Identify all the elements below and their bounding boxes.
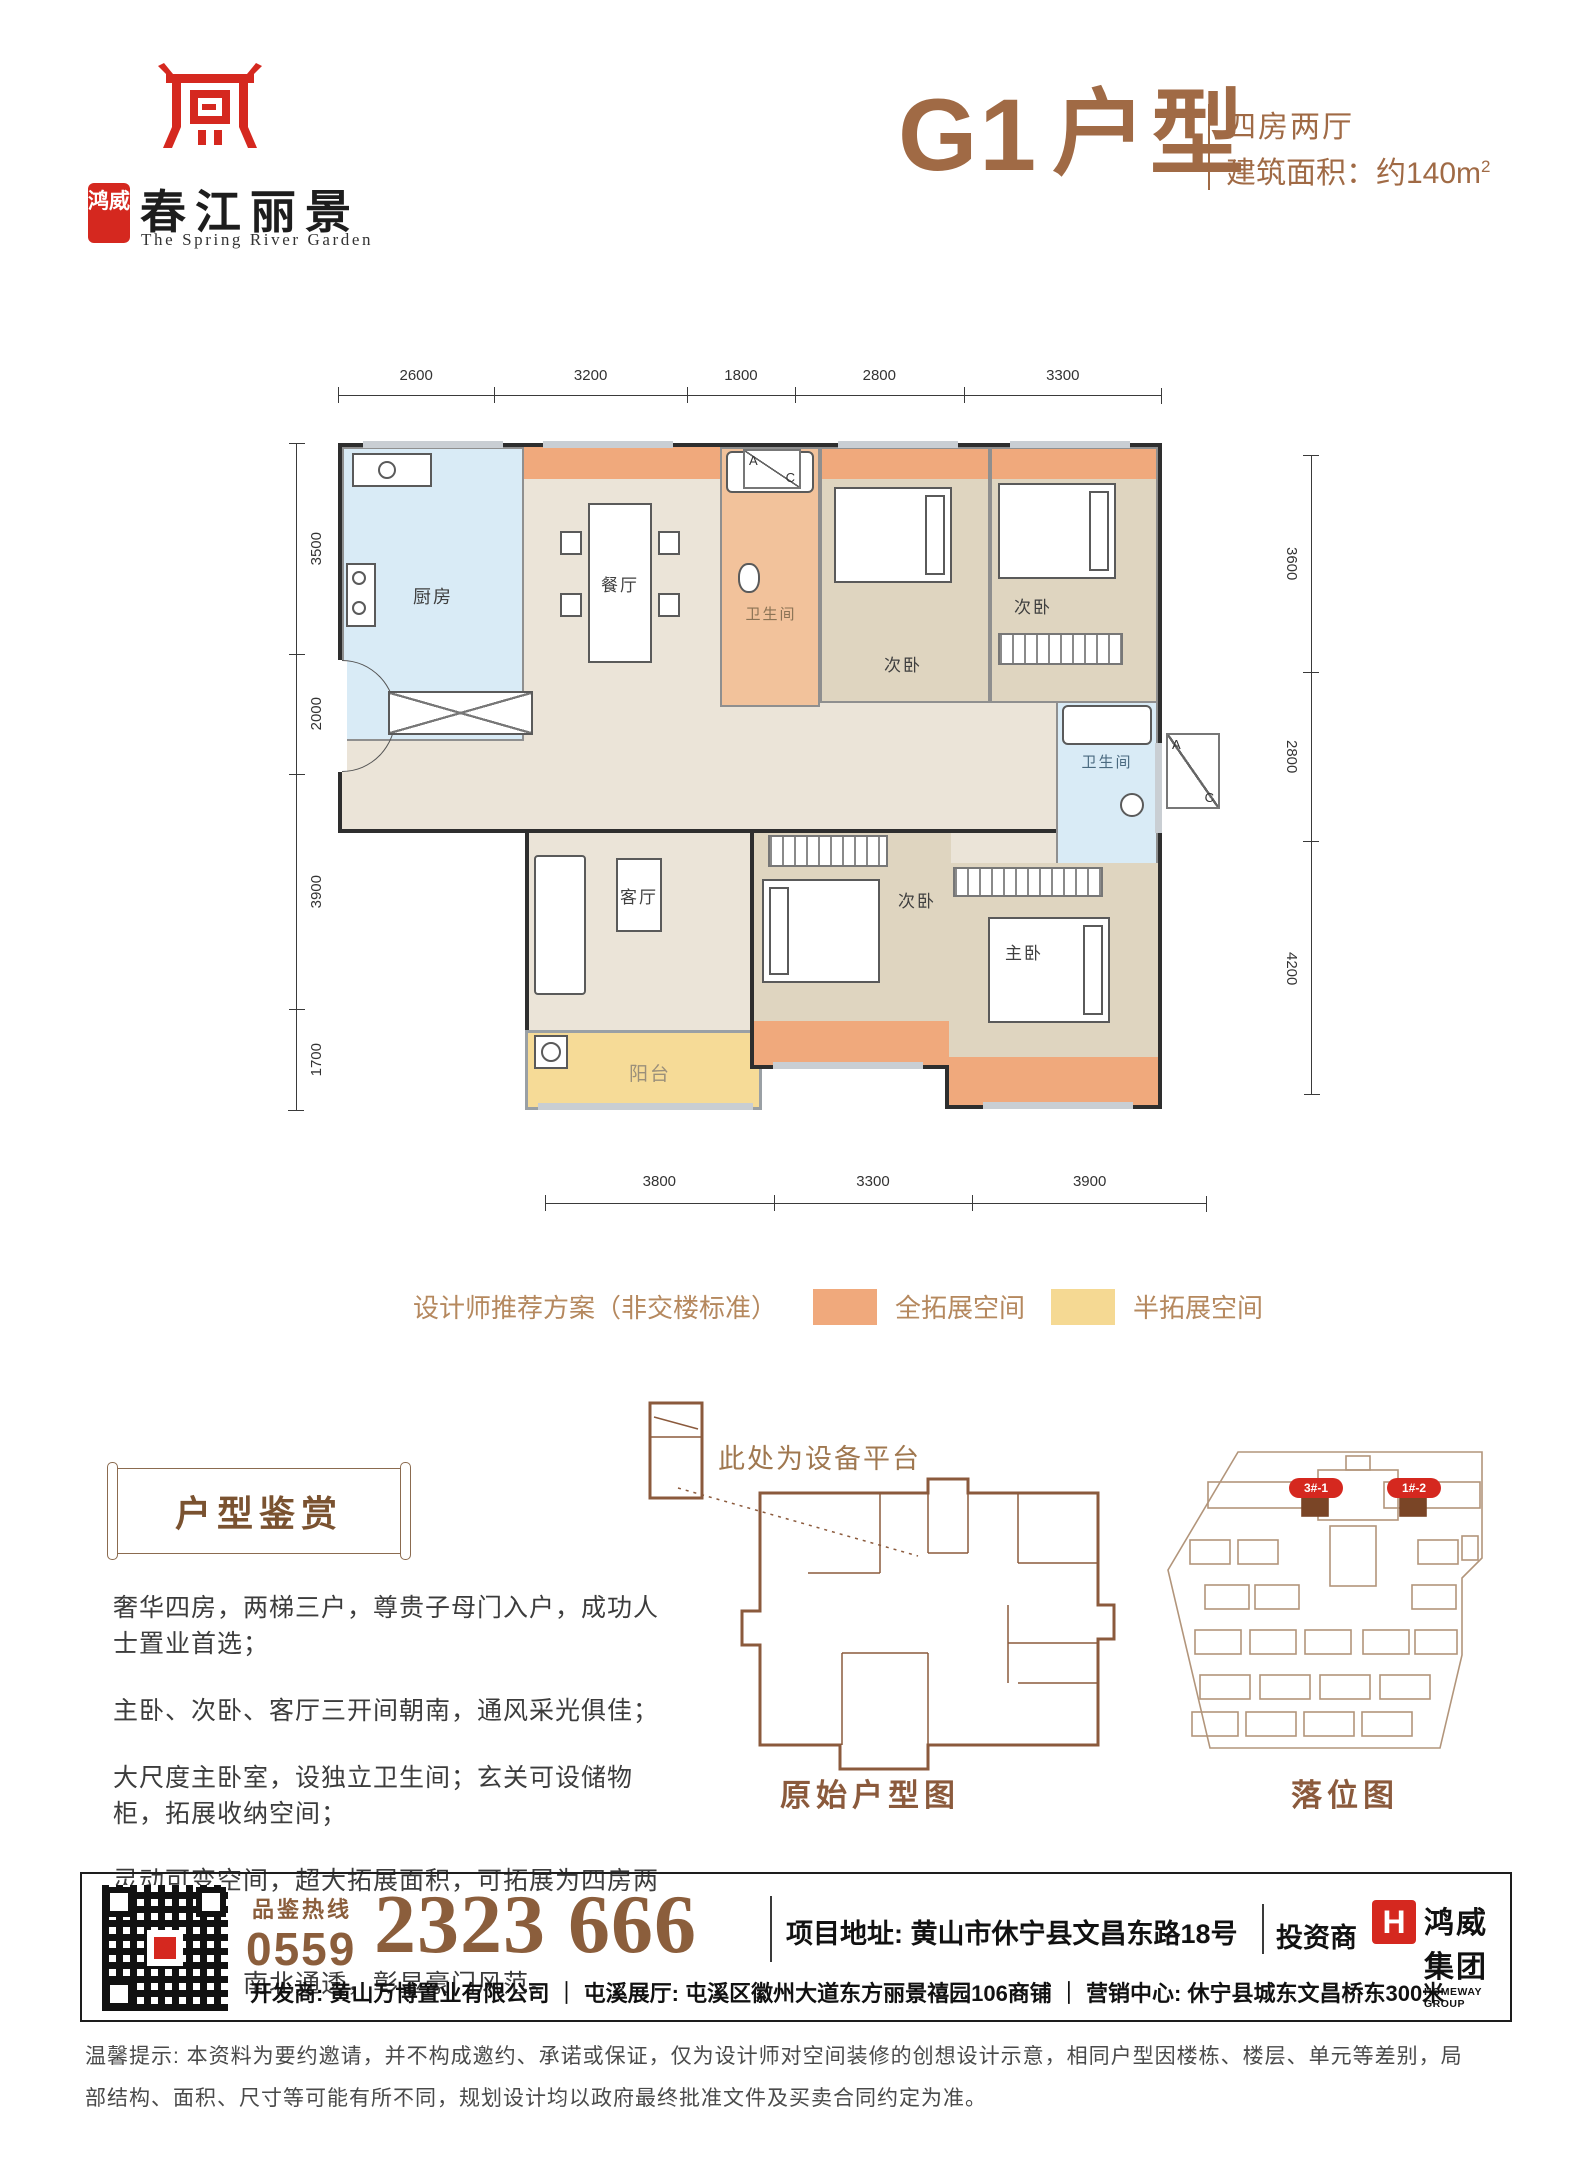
room-label-kitchen: 厨房: [393, 583, 473, 609]
legend-note: 设计师推荐方案（非交楼标准）: [413, 1288, 777, 1325]
dim-bottom: 3800 3300 3900: [545, 1164, 1207, 1204]
dim-segment: 1700: [296, 1009, 336, 1111]
dim-segment: 3300: [774, 1164, 973, 1204]
site-marker: 1#-2: [1387, 1478, 1441, 1498]
dim-segment: 2600: [338, 358, 494, 396]
window: [773, 1062, 923, 1069]
legend: 设计师推荐方案（非交楼标准） 全拓展空间 半拓展空间: [413, 1288, 1263, 1325]
ac-letter: A: [1172, 737, 1181, 752]
window: [838, 441, 958, 448]
wardrobe: [953, 867, 1103, 897]
brand-emblem-icon: [158, 60, 262, 160]
investor-label: 投资商: [1276, 1916, 1357, 1955]
toilet: [738, 563, 760, 593]
bed: [834, 487, 952, 583]
legend-swatch-full-expand: [813, 1289, 877, 1325]
appreciation-line: 主卧、次卧、客厅三开间朝南，通风采光俱佳；: [113, 1691, 673, 1727]
qr-finder: [104, 1887, 134, 1917]
dim-left: 3500 2000 3900 1700: [296, 443, 336, 1111]
sofa: [534, 855, 586, 995]
dim-segment: 3900: [296, 774, 336, 1009]
unit-word: 户型: [1052, 84, 1248, 184]
original-plan-caption: 原始户型图: [770, 1770, 970, 1815]
burner: [352, 601, 366, 615]
room-label-living: 客厅: [620, 883, 658, 908]
hotline-number: 2323 666: [374, 1876, 697, 1973]
unit-type: 四房两厅: [1226, 102, 1354, 146]
room-label-balcony: 阳台: [618, 1059, 682, 1086]
title-divider: [1208, 104, 1210, 190]
qr-finder: [196, 1887, 226, 1917]
dim-segment: 3900: [972, 1164, 1207, 1204]
dim-segment: 2000: [296, 654, 336, 774]
tea-table: 客厅: [616, 858, 662, 932]
room-label-dining: 餐厅: [601, 571, 639, 596]
brand-seal: 鸿威: [88, 183, 130, 243]
contact-bar: 品鉴热线 0559 2323 666 项目地址: 黄山市休宁县文昌东路18号 投…: [80, 1872, 1512, 2022]
site-plan-caption: 落位图: [1265, 1770, 1425, 1815]
appreciation-title-box: 户型鉴赏: [113, 1468, 405, 1554]
dining-chair: [658, 593, 680, 617]
dining-chair: [560, 593, 582, 617]
disclaimer-line: 温馨提示: 本资料为要约邀请，并不构成邀约、承诺或保证，仅为设计师对空间装修的创…: [85, 2040, 1525, 2070]
ac-letter: C: [1205, 790, 1214, 805]
developer-line: 开发商: 黄山万博置业有限公司 ｜ 屯溪展厅: 屯溪区徽州大道东方丽景禧园106…: [250, 1976, 1444, 2008]
bed: [762, 879, 880, 983]
room-label-bath-master: 卫生间: [1064, 751, 1150, 772]
appreciation-line: 大尺度主卧室，设独立卫生间；玄关可设储物柜，拓展收纳空间；: [113, 1758, 673, 1830]
sink-basin: [378, 461, 396, 479]
unit-code: G1: [898, 84, 1038, 186]
investor-name: 鸿威集团: [1424, 1898, 1510, 1986]
bed: [998, 483, 1116, 579]
ac-platform: A C: [1166, 733, 1220, 809]
expand-band-dining: [524, 447, 722, 479]
project-address: 项目地址: 黄山市休宁县文昌东路18号: [786, 1912, 1238, 1951]
unit-area: 建筑面积：约140m2: [1226, 148, 1491, 192]
qr-finder: [104, 1979, 134, 2009]
area-prefix: 建筑面积：: [1226, 157, 1376, 190]
shoe-cabinet: [388, 691, 533, 735]
floorplan: 餐厅 客厅 A C A C 厨房 卫生间 次卧 次卧 卫生间 阳台 次卧 主卧: [338, 443, 1162, 1111]
homeway-logo: H: [1372, 1900, 1416, 1944]
dim-segment: 3800: [545, 1164, 774, 1204]
wardrobe: [768, 835, 888, 867]
room-label-master: 主卧: [993, 939, 1055, 964]
ac-platform: A C: [743, 449, 801, 489]
ac-letter: A: [749, 453, 758, 468]
dim-segment: 3500: [296, 443, 336, 654]
equipment-platform-note: 此处为设备平台: [718, 1437, 921, 1476]
wardrobe: [998, 633, 1123, 665]
dim-segment: 1800: [687, 358, 795, 396]
ac-letter: C: [786, 470, 795, 485]
expand-band-master: [949, 1057, 1158, 1105]
dining-chair: [658, 531, 680, 555]
site-marker: 3#-1: [1289, 1478, 1343, 1498]
dim-segment: 2800: [1272, 672, 1312, 841]
washer-drum: [541, 1042, 561, 1062]
area-value: 约140m: [1376, 157, 1481, 190]
page-title: G1 户型: [898, 84, 1248, 186]
dining-table: 餐厅: [588, 503, 652, 663]
dim-segment: 2800: [795, 358, 963, 396]
dining-chair: [560, 531, 582, 555]
room-label-bed-top-right: 次卧: [993, 593, 1073, 618]
legend-label-full-expand: 全拓展空间: [895, 1288, 1025, 1325]
brand-name-en: The Spring River Garden: [141, 230, 373, 250]
bed: [988, 917, 1110, 1023]
qr-center-seal: [147, 1930, 183, 1966]
disclaimer-line: 部结构、面积、尺寸等可能有所不同，规划设计均以政府最终批准文件及买卖合同约定为准…: [85, 2082, 1525, 2112]
dim-top: 2600 3200 1800 2800 3300: [338, 358, 1162, 396]
contact-divider: [770, 1896, 772, 1962]
legend-swatch-half-expand: [1051, 1289, 1115, 1325]
window: [543, 441, 673, 448]
expand-band-bed3: [992, 449, 1156, 479]
contact-divider: [1262, 1904, 1264, 1954]
expand-band-bed4: [754, 1021, 951, 1065]
hotline-area-code: 0559: [246, 1922, 356, 1976]
expand-band-bed2: [822, 449, 988, 479]
site-plan-drawing: [1150, 1440, 1540, 1790]
window: [1155, 743, 1162, 833]
hotline-label: 品鉴热线: [252, 1892, 352, 1924]
dim-segment: 3600: [1272, 455, 1312, 672]
address-value: 黄山市休宁县文昌东路18号: [911, 1919, 1238, 1949]
washbasin: [1120, 793, 1144, 817]
room-label-bath-top: 卫生间: [726, 603, 816, 624]
dim-segment: 3200: [494, 358, 686, 396]
dim-segment: 3300: [964, 358, 1162, 396]
dim-segment: 4200: [1272, 841, 1312, 1095]
window: [363, 441, 503, 448]
window: [983, 1102, 1133, 1109]
dim-right: 3600 2800 4200: [1272, 455, 1312, 1095]
room-label-bed-bottom: 次卧: [886, 887, 948, 912]
burner: [352, 571, 366, 585]
legend-label-half-expand: 半拓展空间: [1133, 1288, 1263, 1325]
appreciation-line: 奢华四房，两梯三户，尊贵子母门入户，成功人士置业首选；: [113, 1588, 673, 1660]
bathtub: [1062, 705, 1152, 745]
room-label-bed-top-mid: 次卧: [863, 651, 943, 676]
area-sup: 2: [1481, 157, 1490, 176]
address-label: 项目地址:: [786, 1919, 903, 1949]
window: [1010, 441, 1130, 448]
qr-code: [102, 1885, 228, 2011]
appreciation-title: 户型鉴赏: [175, 1485, 343, 1537]
window: [538, 1103, 753, 1110]
